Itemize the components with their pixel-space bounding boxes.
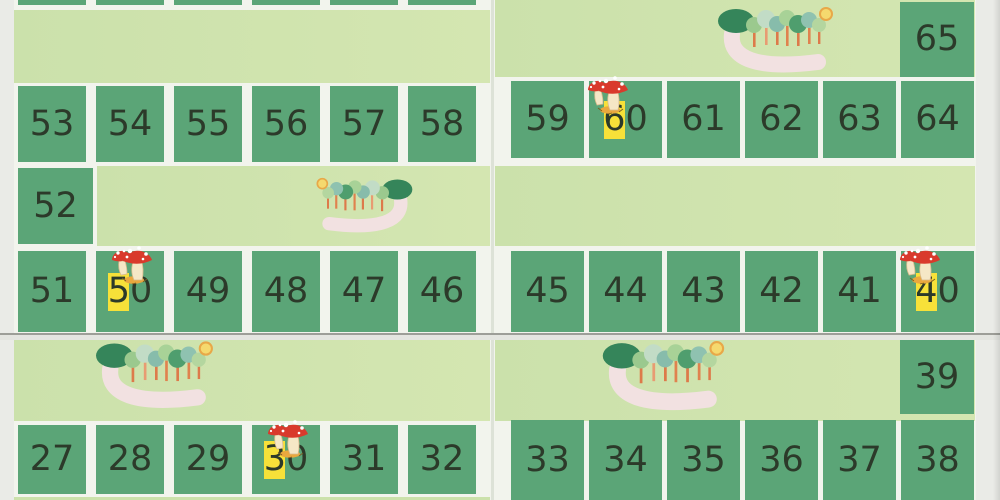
cell-64: 64 [901,81,974,158]
cell-number: 42 [759,274,804,309]
cell-number: 48 [264,274,309,309]
cell-32: 32 [408,425,476,494]
cell-number: 44 [603,274,648,309]
cell-63: 63 [823,81,896,158]
cell-number: 45 [525,274,570,309]
cell-number: 57 [342,107,387,142]
cell-33: 33 [511,420,584,500]
cell-number: 39 [915,360,960,395]
cell-29: 29 [174,425,242,494]
cell-number: 32 [420,442,465,477]
cell-30: 30 [252,425,320,494]
cell-65: 65 [900,2,974,77]
cell-45: 45 [511,251,584,332]
cell-number: 27 [30,442,75,477]
cell-31: 31 [330,425,398,494]
path-band-bottom-left [14,340,490,421]
cell-number: 51 [30,274,75,309]
cell-number: 47 [342,274,387,309]
cell-59: 59 [511,81,584,158]
cell-number: 61 [681,102,726,137]
cell-54: 54 [96,86,164,162]
sheet-seam-vertical [491,0,494,500]
cell-40: 40 [901,251,974,332]
partial-square [18,0,86,5]
cell-51: 51 [18,251,86,332]
cell-57: 57 [330,86,398,162]
cell-38: 38 [901,420,974,500]
partial-square [408,0,476,5]
forest-illustration [314,174,414,240]
cell-27: 27 [18,425,86,494]
path-band-top-left [14,10,490,83]
partial-square [174,0,242,5]
cell-48: 48 [252,251,320,332]
cell-46: 46 [408,251,476,332]
cell-number: 38 [915,443,960,478]
cell-number: 31 [342,442,387,477]
forest-illustration [94,340,216,414]
cell-number: 52 [33,189,78,224]
cell-55: 55 [174,86,242,162]
cell-35: 35 [667,420,740,500]
cell-number: 43 [681,274,726,309]
cell-39: 39 [900,340,974,414]
cell-56: 56 [252,86,320,162]
cell-62: 62 [745,81,818,158]
mushroom-icon [586,71,632,115]
path-band-middle-right [495,166,975,246]
cell-number: 62 [759,102,804,137]
partial-square [252,0,320,5]
cell-number: 64 [915,102,960,137]
cell-number: 33 [525,443,570,478]
cell-number: 28 [108,442,153,477]
cell-43: 43 [667,251,740,332]
cell-number: 65 [915,22,960,57]
cell-number: 55 [186,107,231,142]
cell-number: 41 [837,274,882,309]
mushroom-icon [266,415,312,459]
cell-53: 53 [18,86,86,162]
cell-34: 34 [589,420,662,500]
cell-number: 36 [759,443,804,478]
cell-number: 37 [837,443,882,478]
game-board: 65 52 39 5354555657585960616263645150494… [0,0,1000,500]
cell-number: 29 [186,442,231,477]
cell-number: 58 [420,107,465,142]
photo-edge-shadow [993,0,1000,500]
cell-number: 56 [264,107,309,142]
cell-52: 52 [18,168,93,244]
cell-50: 50 [96,251,164,332]
cell-41: 41 [823,251,896,332]
cell-36: 36 [745,420,818,500]
cell-number: 53 [30,107,75,142]
forest-illustration [714,6,838,78]
partial-square [96,0,164,5]
board-game-photo: 65 52 39 5354555657585960616263645150494… [0,0,1000,500]
cell-number: 34 [603,443,648,478]
cell-42: 42 [745,251,818,332]
cell-number: 63 [837,102,882,137]
mushroom-icon [898,241,944,285]
path-band-middle-left [97,166,490,246]
cell-37: 37 [823,420,896,500]
cell-49: 49 [174,251,242,332]
cell-number: 59 [525,102,570,137]
mushroom-icon [110,241,156,285]
cell-number: 35 [681,443,726,478]
cell-number: 49 [186,274,231,309]
cell-58: 58 [408,86,476,162]
cell-number: 46 [420,274,465,309]
cell-number: 54 [108,107,153,142]
cell-60: 60 [589,81,662,158]
cell-28: 28 [96,425,164,494]
cell-61: 61 [667,81,740,158]
forest-illustration [596,340,732,416]
cell-47: 47 [330,251,398,332]
cell-44: 44 [589,251,662,332]
sheet-seam-horizontal [0,333,1000,340]
partial-square [330,0,398,5]
